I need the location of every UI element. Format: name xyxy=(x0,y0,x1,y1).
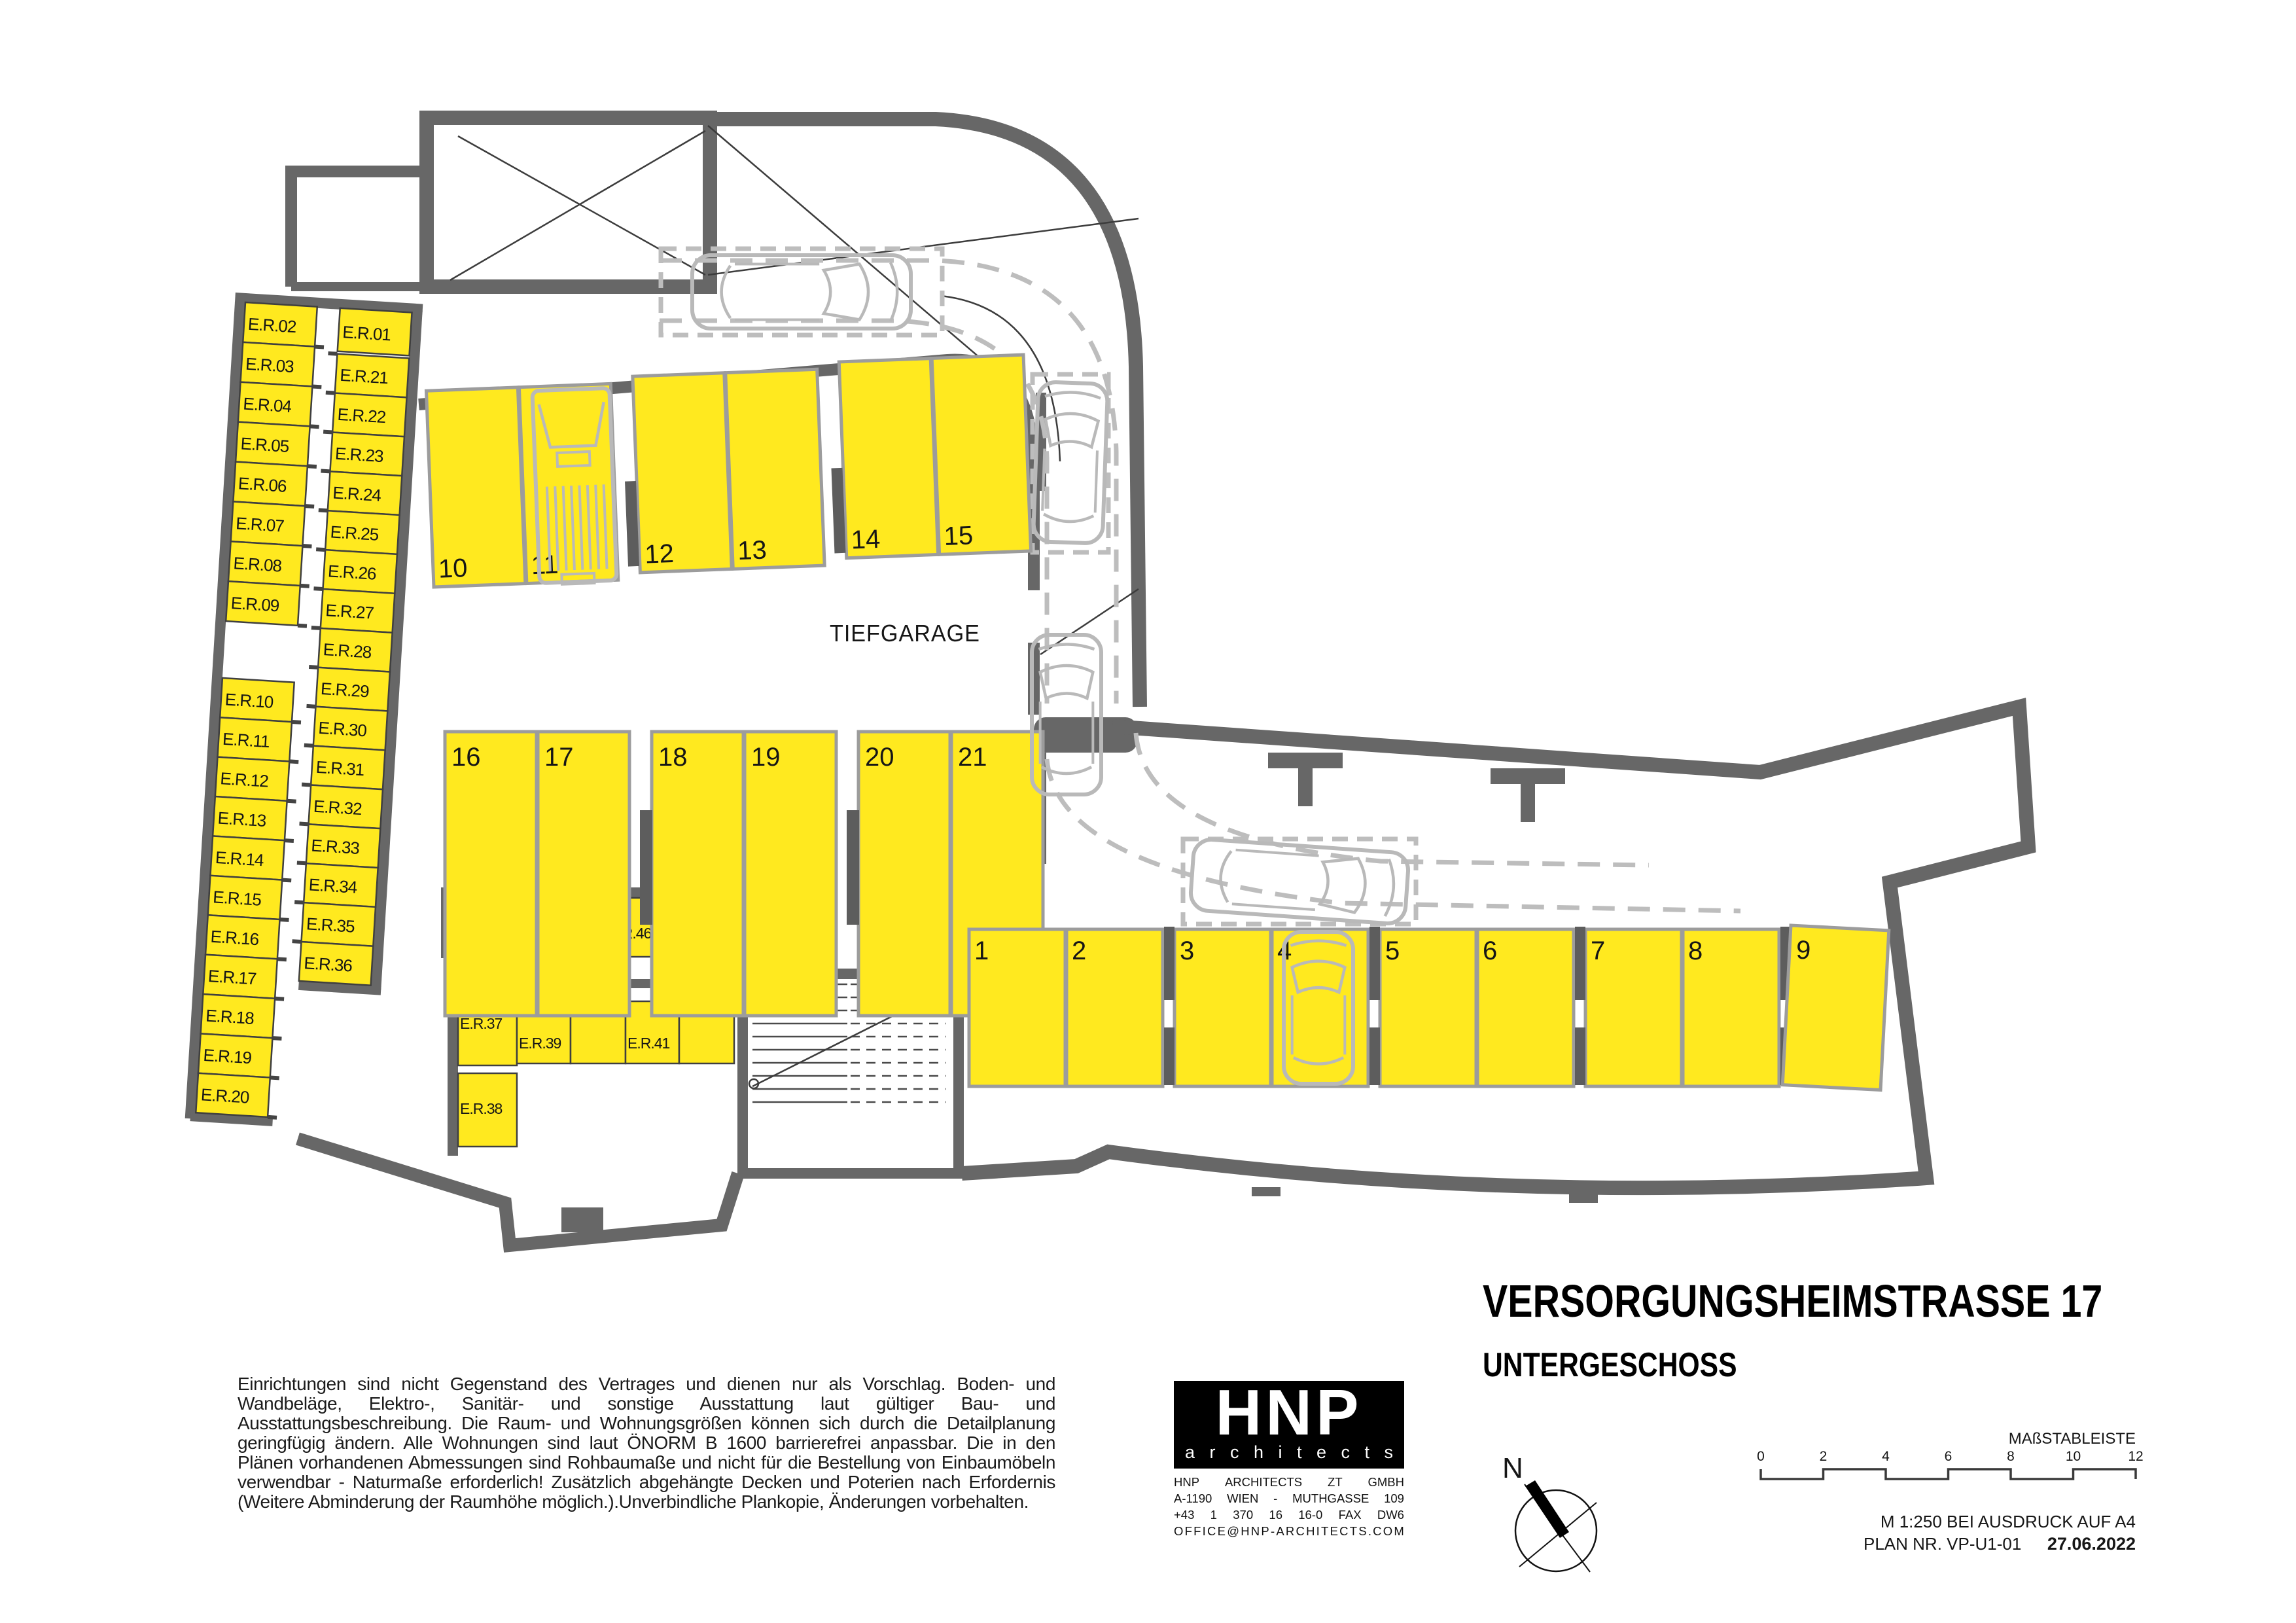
door-tick xyxy=(304,743,313,748)
parking-stall xyxy=(858,732,950,1016)
parking-stall-number: 18 xyxy=(658,743,688,772)
parking-stall-number: 6 xyxy=(1483,936,1497,965)
storage-room-label: E.R.01 xyxy=(342,322,392,344)
door-tick xyxy=(294,900,304,904)
door-tick xyxy=(302,544,311,548)
scale-bar: MAßSTABLEISTE 024681012 xyxy=(1757,1430,2144,1479)
parking-stall-number: 8 xyxy=(1688,936,1703,965)
logo-name: HNP xyxy=(1216,1382,1363,1442)
parking-stall xyxy=(538,732,629,1016)
storage-room-label: E.R.17 xyxy=(207,966,257,988)
door-tick xyxy=(270,1076,279,1080)
storage-room-label: E.R.04 xyxy=(243,394,292,416)
scale-tick-label: 0 xyxy=(1757,1449,1765,1464)
parking-stall-number: 11 xyxy=(531,550,559,580)
storage-room-label: E.R.23 xyxy=(334,444,384,466)
storage-room-label: E.R.31 xyxy=(315,757,365,779)
separator-stub xyxy=(1164,1027,1174,1085)
door-tick xyxy=(308,464,317,469)
pillar xyxy=(1491,768,1565,822)
storage-room-label: E.R.16 xyxy=(210,927,260,949)
separator-stub xyxy=(1164,927,1174,1000)
storage-room-label: E.R.02 xyxy=(247,314,297,336)
pillar xyxy=(1268,753,1343,806)
storage-room-label: E.R.38 xyxy=(460,1100,503,1117)
logo-subname-char: c xyxy=(1230,1442,1239,1462)
storage-room-label: E.R.27 xyxy=(325,600,375,622)
door-tick xyxy=(305,504,314,508)
door-tick xyxy=(292,720,301,724)
scale-bar-label: MAßSTABLEISTE xyxy=(2009,1430,2136,1448)
door-tick xyxy=(279,918,289,922)
wall-stub xyxy=(561,1207,603,1232)
disclaimer-text: Einrichtungen sind nicht Gegenstand des … xyxy=(238,1374,1055,1512)
door-tick xyxy=(313,586,323,591)
plan-date: 27.06.2022 xyxy=(2047,1534,2136,1554)
door-tick xyxy=(323,430,332,435)
logo-subname-char: t xyxy=(1364,1442,1369,1462)
door-tick xyxy=(326,391,335,395)
storage-room-label: E.R.12 xyxy=(220,768,270,791)
storage-room-label: E.R.24 xyxy=(332,483,382,505)
logo-subname-char: a xyxy=(1185,1442,1195,1462)
scale-tick-label: 12 xyxy=(2128,1449,2143,1464)
logo-subname-char: e xyxy=(1316,1442,1326,1462)
parking-stall-number: 1 xyxy=(974,936,989,965)
parking-stall xyxy=(745,732,836,1016)
door-tick xyxy=(272,1036,281,1041)
door-tick xyxy=(302,783,311,787)
door-tick xyxy=(309,665,318,669)
page-subtitle: UNTERGESCHOSS xyxy=(1483,1346,2073,1385)
parking-stall-number: 17 xyxy=(544,743,574,772)
scale-tick-label: 2 xyxy=(1820,1449,1828,1464)
parking-stall-number: 15 xyxy=(944,521,974,551)
door-tick xyxy=(297,861,306,865)
storage-room-label: E.R.34 xyxy=(308,874,358,897)
storage-room-label: E.R.37 xyxy=(460,1015,503,1032)
scale-bar-ticks: 024681012 xyxy=(1757,1449,2144,1464)
door-tick xyxy=(321,469,330,474)
logo-subname-char: t xyxy=(1297,1442,1302,1462)
storage-room-label: E.R.07 xyxy=(235,513,285,535)
door-tick xyxy=(316,547,325,552)
bottom-left-walls xyxy=(298,1139,738,1245)
storage-room-label: E.R.05 xyxy=(240,433,290,455)
logo-subname-char: i xyxy=(1279,1442,1282,1462)
parking-stall-number: 5 xyxy=(1385,936,1400,965)
scale-bar-steps xyxy=(1761,1469,2136,1479)
logo-address: HNPARCHITECTSZTGMBHA-1190WIEN-MUTHGASSE1… xyxy=(1174,1474,1404,1539)
separator-stub xyxy=(1369,1027,1380,1085)
storage-room-label: E.R.03 xyxy=(245,354,294,376)
parking-stall-number: 9 xyxy=(1795,936,1812,965)
door-tick xyxy=(328,351,337,356)
storage-room-label: E.R.25 xyxy=(330,522,380,544)
separator-stub xyxy=(847,810,859,925)
storage-room-label: E.R.29 xyxy=(320,679,370,701)
parking-stall xyxy=(445,732,537,1016)
storage-room-label: E.R.30 xyxy=(318,718,368,740)
hnp-logo: HNP architects xyxy=(1174,1381,1404,1469)
scale-tick-label: 4 xyxy=(1882,1449,1890,1464)
parking-stall-number: 20 xyxy=(865,743,894,772)
parking-stall-number: 12 xyxy=(644,539,674,569)
storage-room-label: E.R.20 xyxy=(200,1084,250,1107)
logo-address-line: HNPARCHITECTSZTGMBH xyxy=(1174,1474,1404,1490)
parking-stall-number: 10 xyxy=(438,554,468,584)
door-tick xyxy=(268,1115,277,1120)
area-label: TIEFGARAGE xyxy=(830,620,980,647)
separator-stub xyxy=(1575,927,1585,1000)
logo-address-line: OFFICE@HNP-ARCHITECTS.COM xyxy=(1174,1523,1404,1539)
parking-stall-number: 21 xyxy=(958,743,987,772)
door-tick xyxy=(315,345,324,349)
door-tick xyxy=(285,838,294,843)
door-tick xyxy=(306,704,315,709)
door-tick xyxy=(309,424,319,429)
separator-stub xyxy=(640,810,652,925)
storage-room-label: E.R.15 xyxy=(213,887,262,909)
logo-subname-char: h xyxy=(1254,1442,1263,1462)
parking-stall-number: 7 xyxy=(1591,936,1605,965)
storage-room-label: E.R.10 xyxy=(224,689,274,711)
storage-room-label: E.R.36 xyxy=(304,953,353,975)
scale-tick-label: 6 xyxy=(1945,1449,1952,1464)
storage-room-label: E.R.33 xyxy=(311,836,361,858)
door-tick xyxy=(289,759,298,764)
scale-tick-label: 8 xyxy=(2007,1449,2015,1464)
storage-room-label: E.R.35 xyxy=(306,914,355,936)
storage-room-label: E.R.39 xyxy=(519,1035,561,1052)
parking-stall-number: 19 xyxy=(751,743,781,772)
separator-stub xyxy=(1575,1027,1585,1085)
logo-address-line: A-1190WIEN-MUTHGASSE109 xyxy=(1174,1490,1404,1507)
logo-subname-char: c xyxy=(1341,1442,1351,1462)
door-tick xyxy=(282,878,291,883)
storage-room-label: E.R.13 xyxy=(217,808,267,830)
scale-tick-label: 10 xyxy=(2066,1449,2081,1464)
storage-room-label: E.R.28 xyxy=(323,639,372,662)
storage-room-label: E.R.32 xyxy=(313,796,362,819)
parking-row-top: 101112131415 xyxy=(426,355,1032,587)
north-label: N xyxy=(1502,1452,1523,1484)
storage-room-label: E.R.14 xyxy=(215,847,264,870)
print-scale-note: M 1:250 BEI AUSDRUCK AUF A4 xyxy=(1881,1512,2136,1531)
storage-room-label: E.R.09 xyxy=(230,593,280,615)
door-tick xyxy=(312,384,321,389)
door-tick xyxy=(299,822,308,827)
door-tick xyxy=(319,508,328,512)
door-tick xyxy=(300,584,309,588)
parking-stall-number: 14 xyxy=(851,525,881,555)
parking-row-middle: 161718192021 xyxy=(445,732,1043,1016)
logo-subname: architects xyxy=(1185,1442,1393,1462)
logo-subname-char: s xyxy=(1384,1442,1393,1462)
parking-stall-number: 16 xyxy=(451,743,481,772)
wall-stub xyxy=(1252,1187,1280,1196)
door-tick xyxy=(292,939,301,944)
parking-stall-number: 3 xyxy=(1180,936,1194,965)
storage-room-label: E.R.22 xyxy=(337,404,387,427)
separator-stub xyxy=(1369,927,1380,1000)
door-tick xyxy=(277,957,287,961)
door-tick xyxy=(287,799,296,804)
parking-stall-number: 13 xyxy=(737,535,767,565)
storage-room-label: E.R.11 xyxy=(222,729,270,751)
north-arrow: N xyxy=(1502,1452,1597,1572)
top-room-left-walls xyxy=(291,171,427,287)
storage-room-label: E.R.08 xyxy=(233,553,283,575)
plan-number: PLAN NR. VP-U1-01 xyxy=(1863,1534,2021,1554)
logo-address-line: +4313701616-0FAXDW6 xyxy=(1174,1507,1404,1523)
storage-room-label: E.R.19 xyxy=(203,1045,253,1067)
parking-stall xyxy=(652,732,743,1016)
ghost-car xyxy=(692,255,911,329)
door-tick xyxy=(275,997,284,1001)
storage-room-label: E.R.26 xyxy=(327,561,377,583)
parking-stall-number: 2 xyxy=(1072,936,1086,965)
logo-subname-char: r xyxy=(1210,1442,1216,1462)
storage-room-label: E.R.06 xyxy=(238,473,287,495)
page-title: VERSORGUNGSHEIMSTRASSE 17 xyxy=(1483,1275,2073,1327)
storage-room-label: E.R.18 xyxy=(205,1005,255,1027)
door-tick xyxy=(298,624,307,628)
storage-room-label: E.R.21 xyxy=(340,365,389,387)
parking-row-bottom: 123456789 xyxy=(969,925,1889,1090)
north-needle xyxy=(1525,1480,1569,1538)
storage-left-block: E.R.02E.R.03E.R.04E.R.05E.R.06E.R.07E.R.… xyxy=(185,293,423,1132)
wall-stub xyxy=(1569,1194,1598,1203)
door-tick xyxy=(311,626,321,630)
storage-room-label: E.R.41 xyxy=(627,1035,670,1052)
